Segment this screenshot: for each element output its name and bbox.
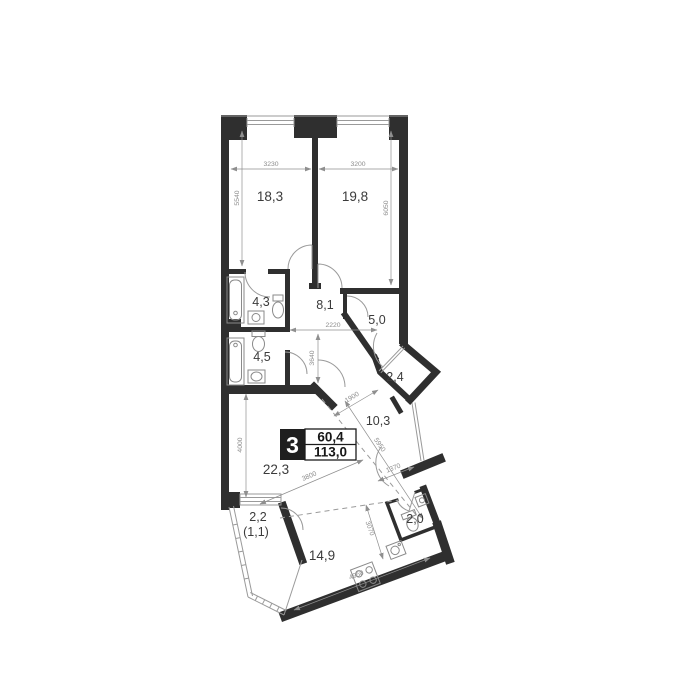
window-bedroom1 (247, 118, 294, 127)
wall-bath2-right (285, 350, 290, 387)
wall-balcony-east (283, 506, 302, 560)
door-hall-corridor (318, 360, 345, 387)
area-badge: 3 60,4 113,0 (280, 429, 356, 460)
floor-plan: 3230 3200 5540 6050 2220 3640 1900 5950 … (0, 0, 700, 700)
dim-label-1900: 1900 (344, 391, 361, 405)
wall-loggia-stub (393, 399, 400, 411)
room-label-loggia: 2,4 (386, 370, 403, 384)
windows-layer (221, 116, 424, 615)
wall-bedroom-divider-cap (309, 283, 321, 289)
room-label-storage: 5,0 (368, 313, 385, 327)
glazing-balcony-south-ticks (255, 596, 279, 611)
dim-label-3800: 3800 (301, 470, 318, 482)
wall-bath-divider-chunk (221, 319, 241, 332)
dim-label-3640: 3640 (309, 350, 316, 365)
kitchen-sink (386, 541, 406, 560)
window-loggia (379, 346, 405, 373)
floor-plan-canvas: 3230 3200 5540 6050 2220 3640 1900 5950 … (0, 0, 700, 700)
room-label-bedroom2: 19,8 (342, 189, 368, 204)
window-balcony-door-lines (240, 498, 281, 502)
room-label-bathroom2: 4,5 (253, 350, 270, 364)
badge-living-area: 60,4 (317, 430, 344, 445)
bathtub-1 (227, 277, 244, 323)
door-bedroom1 (288, 245, 312, 269)
wall-bath-bottom (221, 385, 318, 394)
bathtub-2 (227, 338, 244, 385)
room-label-corridor: 10,3 (366, 414, 390, 428)
dim-label-6050: 6050 (383, 200, 390, 215)
dim-label-4000: 4000 (237, 437, 244, 452)
wall-hall-stub (314, 387, 332, 405)
dim-label-3230: 3230 (263, 161, 278, 168)
wall-block-top-center (294, 115, 337, 138)
room-label-balcony: 2,2 (249, 510, 266, 524)
wall-balcony-block (221, 492, 240, 508)
door-bath1 (245, 272, 270, 297)
wall-loggia-exterior (404, 345, 436, 400)
dim-label-5540: 5540 (234, 190, 241, 205)
badge-total-area: 113,0 (314, 445, 347, 460)
room-label-hallway: 8,1 (316, 298, 333, 312)
window-corridor-east (412, 403, 424, 462)
dim-label-3200: 3200 (350, 161, 365, 168)
toilet-2 (252, 331, 265, 352)
wall-exterior-left (221, 115, 229, 510)
walls-layer (221, 115, 449, 622)
room-label-wc: 2,0 (406, 512, 423, 526)
toilet-1 (273, 295, 284, 318)
badge-room-count: 3 (286, 432, 299, 458)
room-label-bedroom1: 18,3 (257, 189, 283, 204)
wall-block-top-left (221, 115, 247, 140)
door-storage (347, 296, 368, 317)
wall-bedroom1-bottom-a (221, 269, 246, 274)
wall-bath1-right (285, 269, 290, 332)
vanity-sink-1 (248, 311, 264, 324)
dim-label-2220: 2220 (325, 322, 340, 329)
door-wc (397, 492, 415, 511)
room-label-kitchen: 14,9 (309, 548, 335, 563)
glazing-balcony-south (248, 593, 286, 616)
room-labels-layer: 18,3 19,8 4,3 8,1 5,0 4,5 2,4 10,3 22,3 … (243, 189, 424, 563)
wall-bedroom2-bottom (340, 288, 408, 294)
room-label-bathroom1: 4,3 (252, 295, 269, 309)
door-bedroom2 (318, 264, 342, 288)
wall-corridor-southeast-chunk (406, 459, 440, 473)
wall-bedroom-divider (312, 138, 318, 289)
dim-label-3070: 3070 (364, 520, 376, 537)
zone-line-kitchen (280, 500, 399, 518)
room-label-balcony-reduced: (1,1) (243, 525, 269, 539)
window-bedroom2 (337, 118, 389, 127)
room-label-living: 22,3 (263, 462, 289, 477)
wall-exterior-right (399, 115, 408, 344)
vanity-sink-2 (248, 370, 265, 383)
